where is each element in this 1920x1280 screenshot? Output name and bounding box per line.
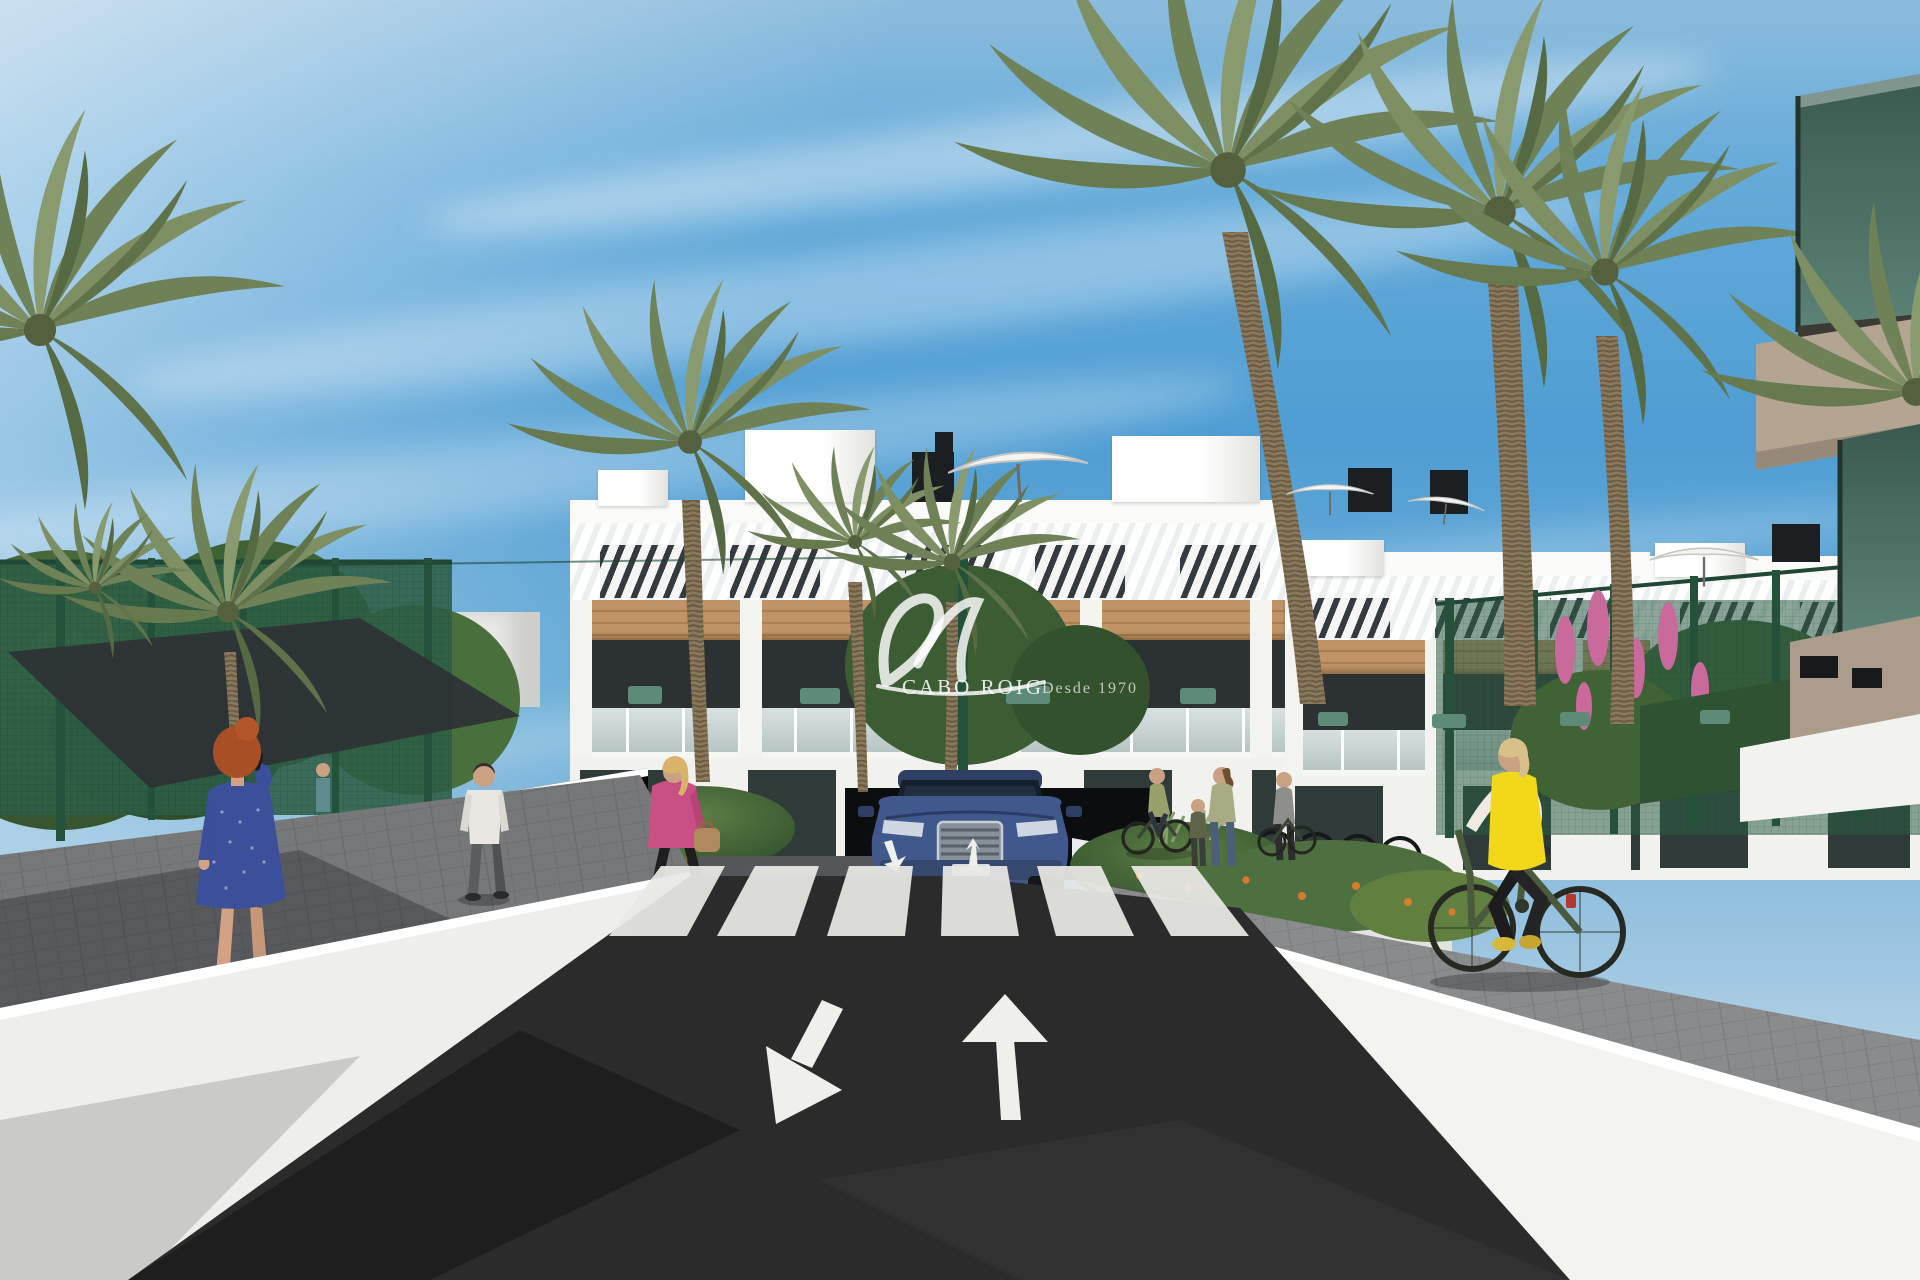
render-scene: CABO ROIG Desde 1970 — [0, 0, 1920, 1280]
watermark-tagline: Desde 1970 — [1042, 680, 1138, 697]
white-shirt — [467, 790, 502, 844]
watermark-brand: CABO ROIG — [902, 675, 1044, 699]
roof-umbrellas — [947, 448, 1920, 586]
scene-overlay: CABO ROIG Desde 1970 — [0, 0, 1920, 1280]
palm-tree — [0, 104, 286, 510]
